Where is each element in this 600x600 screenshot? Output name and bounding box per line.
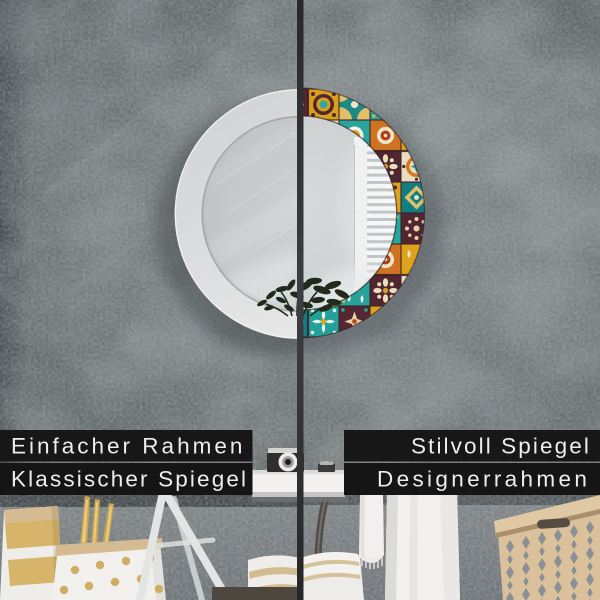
svg-text:Stilvoll Spiegel: Stilvoll Spiegel: [411, 434, 591, 459]
svg-text:Klassischer Spiegel: Klassischer Spiegel: [11, 467, 248, 492]
svg-text:Designerrahmen: Designerrahmen: [377, 467, 590, 492]
svg-text:Einfacher Rahmen: Einfacher Rahmen: [11, 434, 245, 459]
